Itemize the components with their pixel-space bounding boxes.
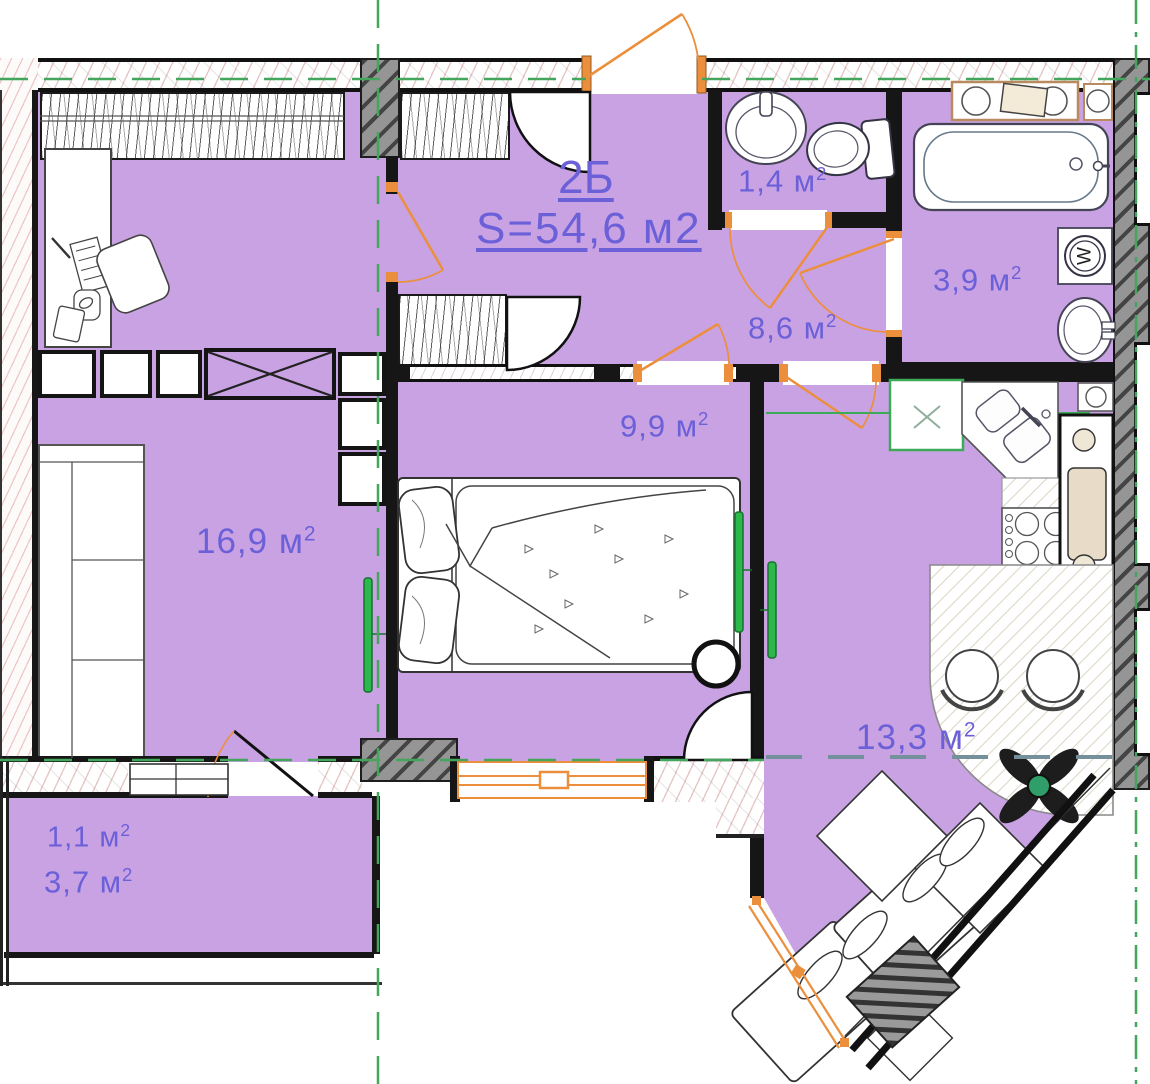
door-opening-bathroom	[886, 236, 902, 332]
wall-top-exterior	[0, 58, 1113, 92]
neighbor-outline	[1134, 92, 1150, 226]
window-cap	[450, 756, 460, 802]
door-opening-kitchen	[783, 361, 879, 385]
wall-junction	[386, 364, 410, 382]
closet-cell	[338, 352, 386, 396]
wall-left-outer-line	[0, 90, 2, 762]
wall-balcony-bottom	[4, 952, 374, 958]
pillar-top	[360, 58, 400, 158]
wall-balcony-band-line	[0, 792, 228, 798]
neighbor-outline	[1134, 342, 1150, 566]
wall-balcony-band	[318, 762, 362, 796]
wall-left-inner-line	[32, 90, 38, 762]
closet-cell-crossed	[204, 348, 336, 400]
bedroom-window	[458, 762, 646, 798]
room-fill-bathroom	[900, 90, 1115, 372]
balcony-outer-line	[0, 982, 382, 985]
door-opening-bedroom	[637, 361, 729, 385]
living-window	[130, 764, 228, 795]
closet-cell	[156, 350, 202, 398]
wall-balcony-band	[0, 762, 128, 796]
wall-bedroom-bottom-step	[716, 798, 764, 838]
wardrobe-shelving-hall-mid	[398, 294, 507, 368]
wall-living-bedroom-b	[386, 278, 398, 764]
closet-cell	[100, 350, 152, 398]
pillar-bedroom-corner	[360, 738, 458, 782]
wall-bathroom-bottom	[898, 362, 1115, 382]
closet-cell	[38, 350, 96, 398]
room-fill-kitchen	[764, 380, 1115, 1042]
wall-bedroom-bottom	[654, 756, 764, 802]
door-opening-wc	[729, 210, 827, 230]
closet-cell	[338, 398, 386, 450]
neighbor-outline	[1134, 608, 1150, 756]
balcony-left-line	[6, 756, 9, 986]
sofa-cushion	[868, 996, 953, 1081]
wall-living-bedroom-a	[386, 156, 398, 194]
wardrobe-shelving-hall-top	[400, 92, 510, 160]
wall-junction	[594, 364, 620, 382]
room-fill-bedroom	[396, 380, 752, 764]
wall-wc-left	[708, 90, 722, 230]
room-fill-balcony	[8, 796, 372, 954]
wall-balcony-right	[372, 796, 380, 954]
floor-plan: W	[0, 0, 1150, 1084]
wall-balcony-band-line	[318, 792, 372, 798]
desk	[44, 148, 112, 348]
closet-cell	[338, 452, 386, 506]
balcony-left-line	[0, 756, 3, 986]
living-cupboard-sofa	[38, 444, 145, 758]
wall-junction	[736, 364, 784, 382]
